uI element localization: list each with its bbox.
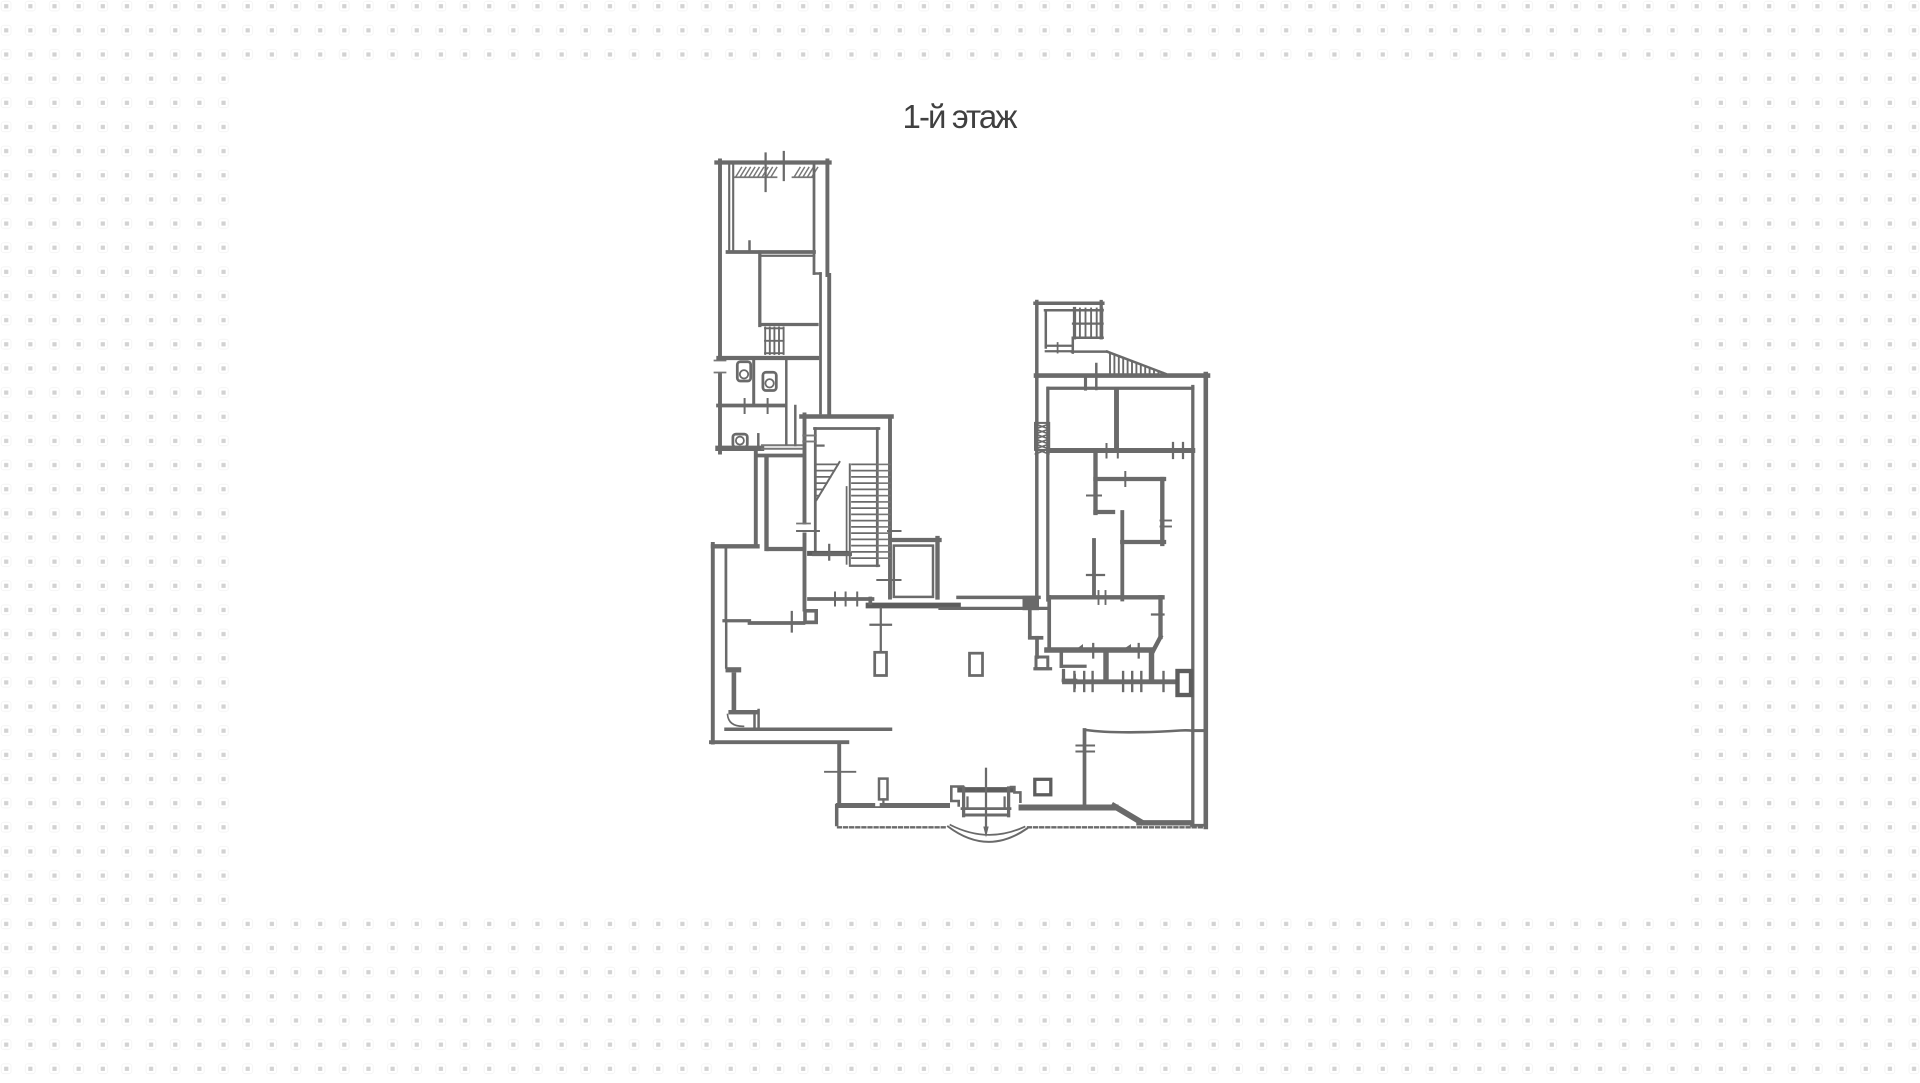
svg-text:1-й этаж: 1-й этаж	[903, 98, 1018, 135]
